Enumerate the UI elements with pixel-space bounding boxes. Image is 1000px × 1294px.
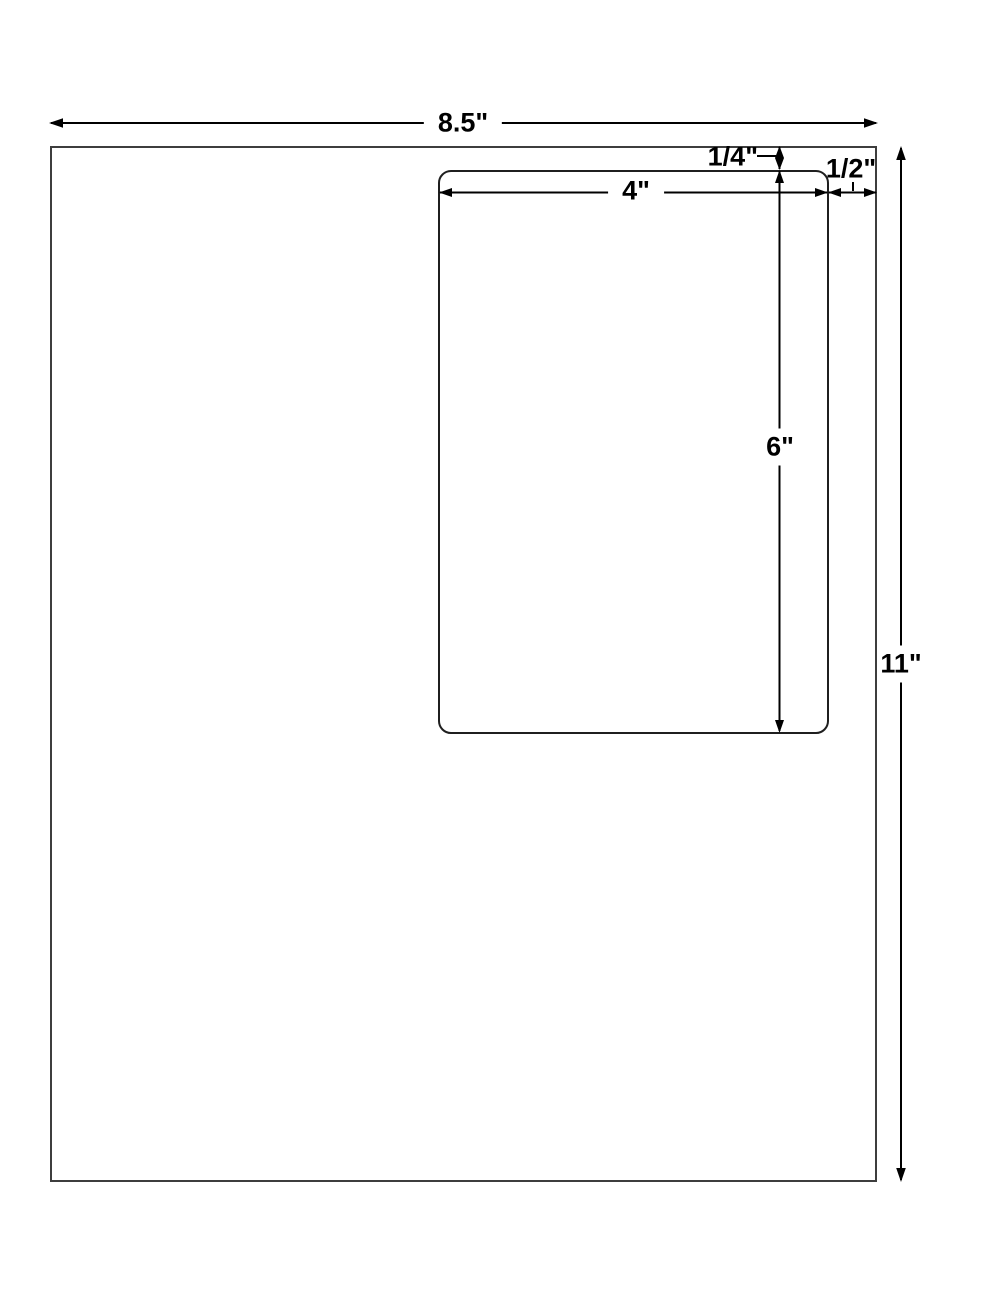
top-margin-dimension-arrow [757, 146, 784, 170]
dimension-lines [0, 0, 1000, 1294]
label-sheet-diagram: 8.5" 11" 4" 6" 1/4" 1/2" [0, 0, 1000, 1294]
right-margin-label: 1/2" [826, 156, 876, 183]
top-margin-label: 1/4" [708, 144, 758, 171]
label-height-label: 6" [763, 429, 797, 466]
right-margin-dimension-arrow [828, 182, 877, 197]
sheet-height-label: 11" [877, 646, 924, 683]
label-width-label: 4" [608, 178, 664, 205]
sheet-width-label: 8.5" [424, 110, 502, 137]
